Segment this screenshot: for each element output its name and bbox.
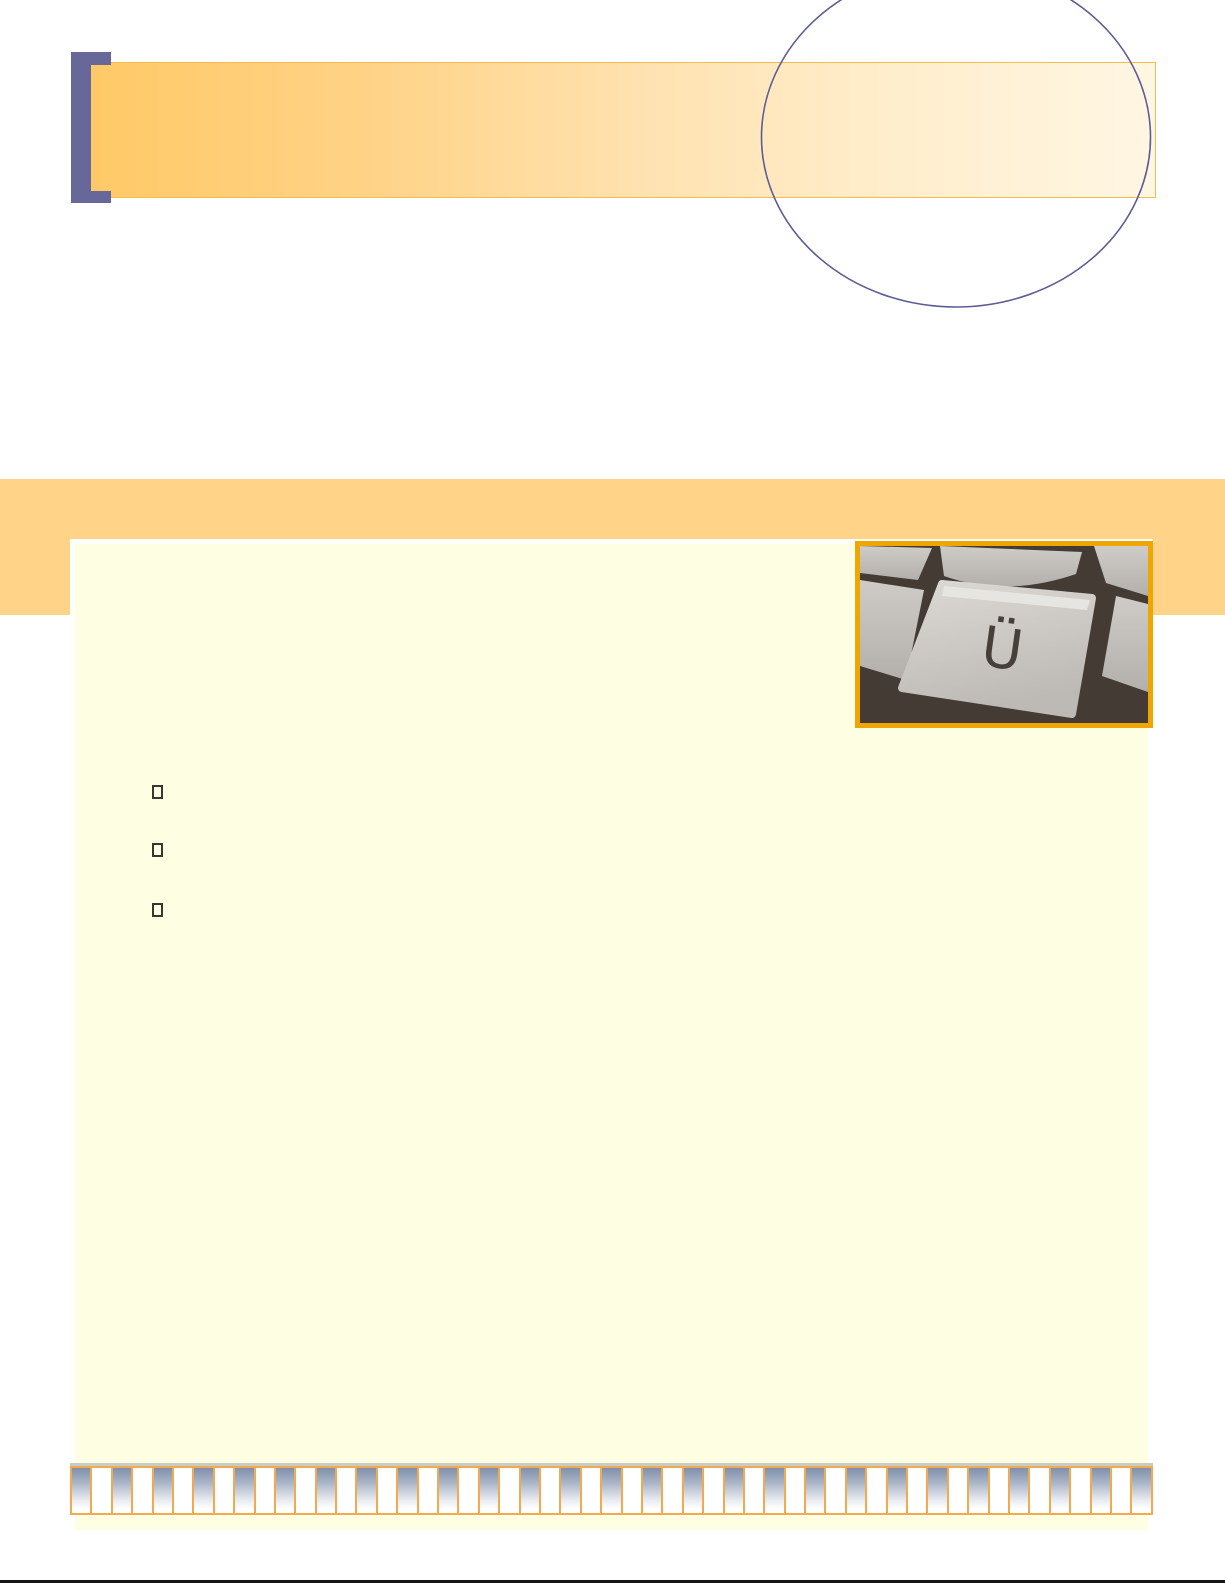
header-gradient-band (88, 62, 1156, 198)
strip-cell (847, 1468, 865, 1513)
strip-cell (806, 1468, 824, 1513)
strip-cell (439, 1468, 457, 1513)
strip-cell (215, 1468, 233, 1513)
strip-cell (92, 1468, 110, 1513)
strip-cell (296, 1468, 314, 1513)
strip-cell (969, 1468, 987, 1513)
strip-cell (480, 1468, 498, 1513)
keyboard-key-photo: Ü (855, 541, 1153, 728)
strip-cell (602, 1468, 620, 1513)
strip-cell (72, 1468, 90, 1513)
strip-cell (398, 1468, 416, 1513)
bullet-placeholder-icon (152, 785, 163, 799)
strip-cell (928, 1468, 946, 1513)
strip-cell (561, 1468, 579, 1513)
strip-cell (1051, 1468, 1069, 1513)
strip-cell (1010, 1468, 1028, 1513)
strip-cell (337, 1468, 355, 1513)
strip-cell (949, 1468, 967, 1513)
piano-strip (70, 1466, 1153, 1515)
strip-cell (643, 1468, 661, 1513)
strip-cell (459, 1468, 477, 1513)
strip-cell (582, 1468, 600, 1513)
strip-cell (276, 1468, 294, 1513)
strip-cell (113, 1468, 131, 1513)
strip-cell (154, 1468, 172, 1513)
strip-cell (133, 1468, 151, 1513)
strip-cell (174, 1468, 192, 1513)
strip-cell (663, 1468, 681, 1513)
strip-cell (1071, 1468, 1089, 1513)
strip-cell (235, 1468, 253, 1513)
strip-cell (888, 1468, 906, 1513)
strip-cell (378, 1468, 396, 1513)
strip-cell (990, 1468, 1008, 1513)
bullet-placeholder-icon (152, 903, 163, 917)
strip-cell (194, 1468, 212, 1513)
strip-cell (256, 1468, 274, 1513)
strip-cell (541, 1468, 559, 1513)
strip-cell (521, 1468, 539, 1513)
bracket-icon (71, 52, 91, 203)
footer-rule (0, 1580, 1225, 1583)
strip-cell (725, 1468, 743, 1513)
bracket-icon-bottom-arm (71, 191, 111, 203)
strip-cell (826, 1468, 844, 1513)
strip-cell (1092, 1468, 1110, 1513)
strip-cell (745, 1468, 763, 1513)
strip-cell (1132, 1468, 1150, 1513)
strip-cell (357, 1468, 375, 1513)
strip-cell (1030, 1468, 1048, 1513)
template-page: Ü (0, 0, 1225, 1585)
strip-cell (623, 1468, 641, 1513)
bullet-placeholder-icon (152, 843, 163, 857)
strip-cell (786, 1468, 804, 1513)
strip-cell (908, 1468, 926, 1513)
strip-cell (1112, 1468, 1130, 1513)
strip-cell (765, 1468, 783, 1513)
strip-cell (867, 1468, 885, 1513)
strip-cell (419, 1468, 437, 1513)
strip-cell (704, 1468, 722, 1513)
keyboard-photo-illustration: Ü (860, 546, 1148, 723)
strip-cell (500, 1468, 518, 1513)
strip-cell (684, 1468, 702, 1513)
bracket-icon-top-arm (71, 52, 111, 65)
strip-cell (317, 1468, 335, 1513)
